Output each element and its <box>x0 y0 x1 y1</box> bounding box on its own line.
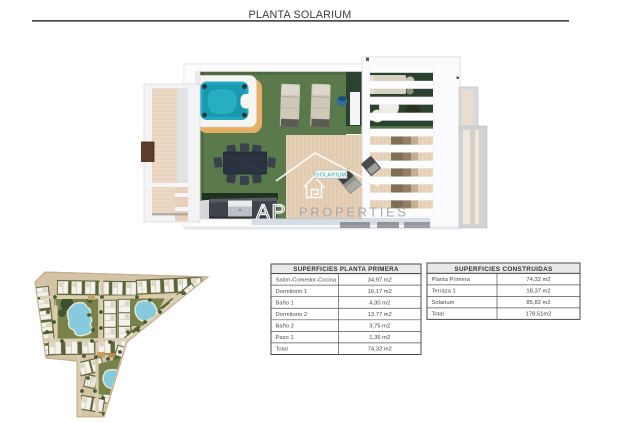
svg-text:SUPERFICIES CONSTRUIDAS: SUPERFICIES CONSTRUIDAS <box>454 266 553 273</box>
svg-text:Terraza 1: Terraza 1 <box>432 289 456 295</box>
svg-text:Planta Primera: Planta Primera <box>432 277 471 283</box>
svg-text:18,37 m2: 18,37 m2 <box>526 289 550 295</box>
svg-text:4,30 m2: 4,30 m2 <box>369 300 390 306</box>
svg-text:Total: Total <box>432 312 444 318</box>
svg-text:Paso 1: Paso 1 <box>276 335 294 341</box>
svg-text:Baño 2: Baño 2 <box>276 323 294 329</box>
svg-text:Baño 1: Baño 1 <box>276 300 294 306</box>
svg-text:PROPERTIES: PROPERTIES <box>299 205 409 220</box>
svg-text:Dormitorio 2: Dormitorio 2 <box>276 312 308 318</box>
svg-text:PLANTA SOLARIUM: PLANTA SOLARIUM <box>249 9 352 21</box>
svg-text:Total: Total <box>276 347 288 353</box>
svg-text:Dormitorio 1: Dormitorio 1 <box>276 289 308 295</box>
svg-text:34,97 m2: 34,97 m2 <box>368 277 392 283</box>
svg-text:1,36 m2: 1,36 m2 <box>369 335 390 341</box>
svg-text:3,75 m2: 3,75 m2 <box>369 323 390 329</box>
svg-text:178,51m2: 178,51m2 <box>526 312 552 318</box>
svg-text:85,82 m2: 85,82 m2 <box>526 300 550 306</box>
svg-text:16,17 m2: 16,17 m2 <box>368 289 392 295</box>
svg-text:13,77 m2: 13,77 m2 <box>368 312 392 318</box>
svg-text:SUPERFICIES PLANTA PRIMERA: SUPERFICIES PLANTA PRIMERA <box>293 266 399 273</box>
svg-text:Solarium: Solarium <box>432 300 455 306</box>
svg-text:74,32 m2: 74,32 m2 <box>526 277 550 283</box>
svg-text:SOLARIUM: SOLARIUM <box>316 173 347 179</box>
svg-text:Salón-Comedor-Cocina: Salón-Comedor-Cocina <box>276 277 337 283</box>
svg-text:74,32 m2: 74,32 m2 <box>368 347 392 353</box>
